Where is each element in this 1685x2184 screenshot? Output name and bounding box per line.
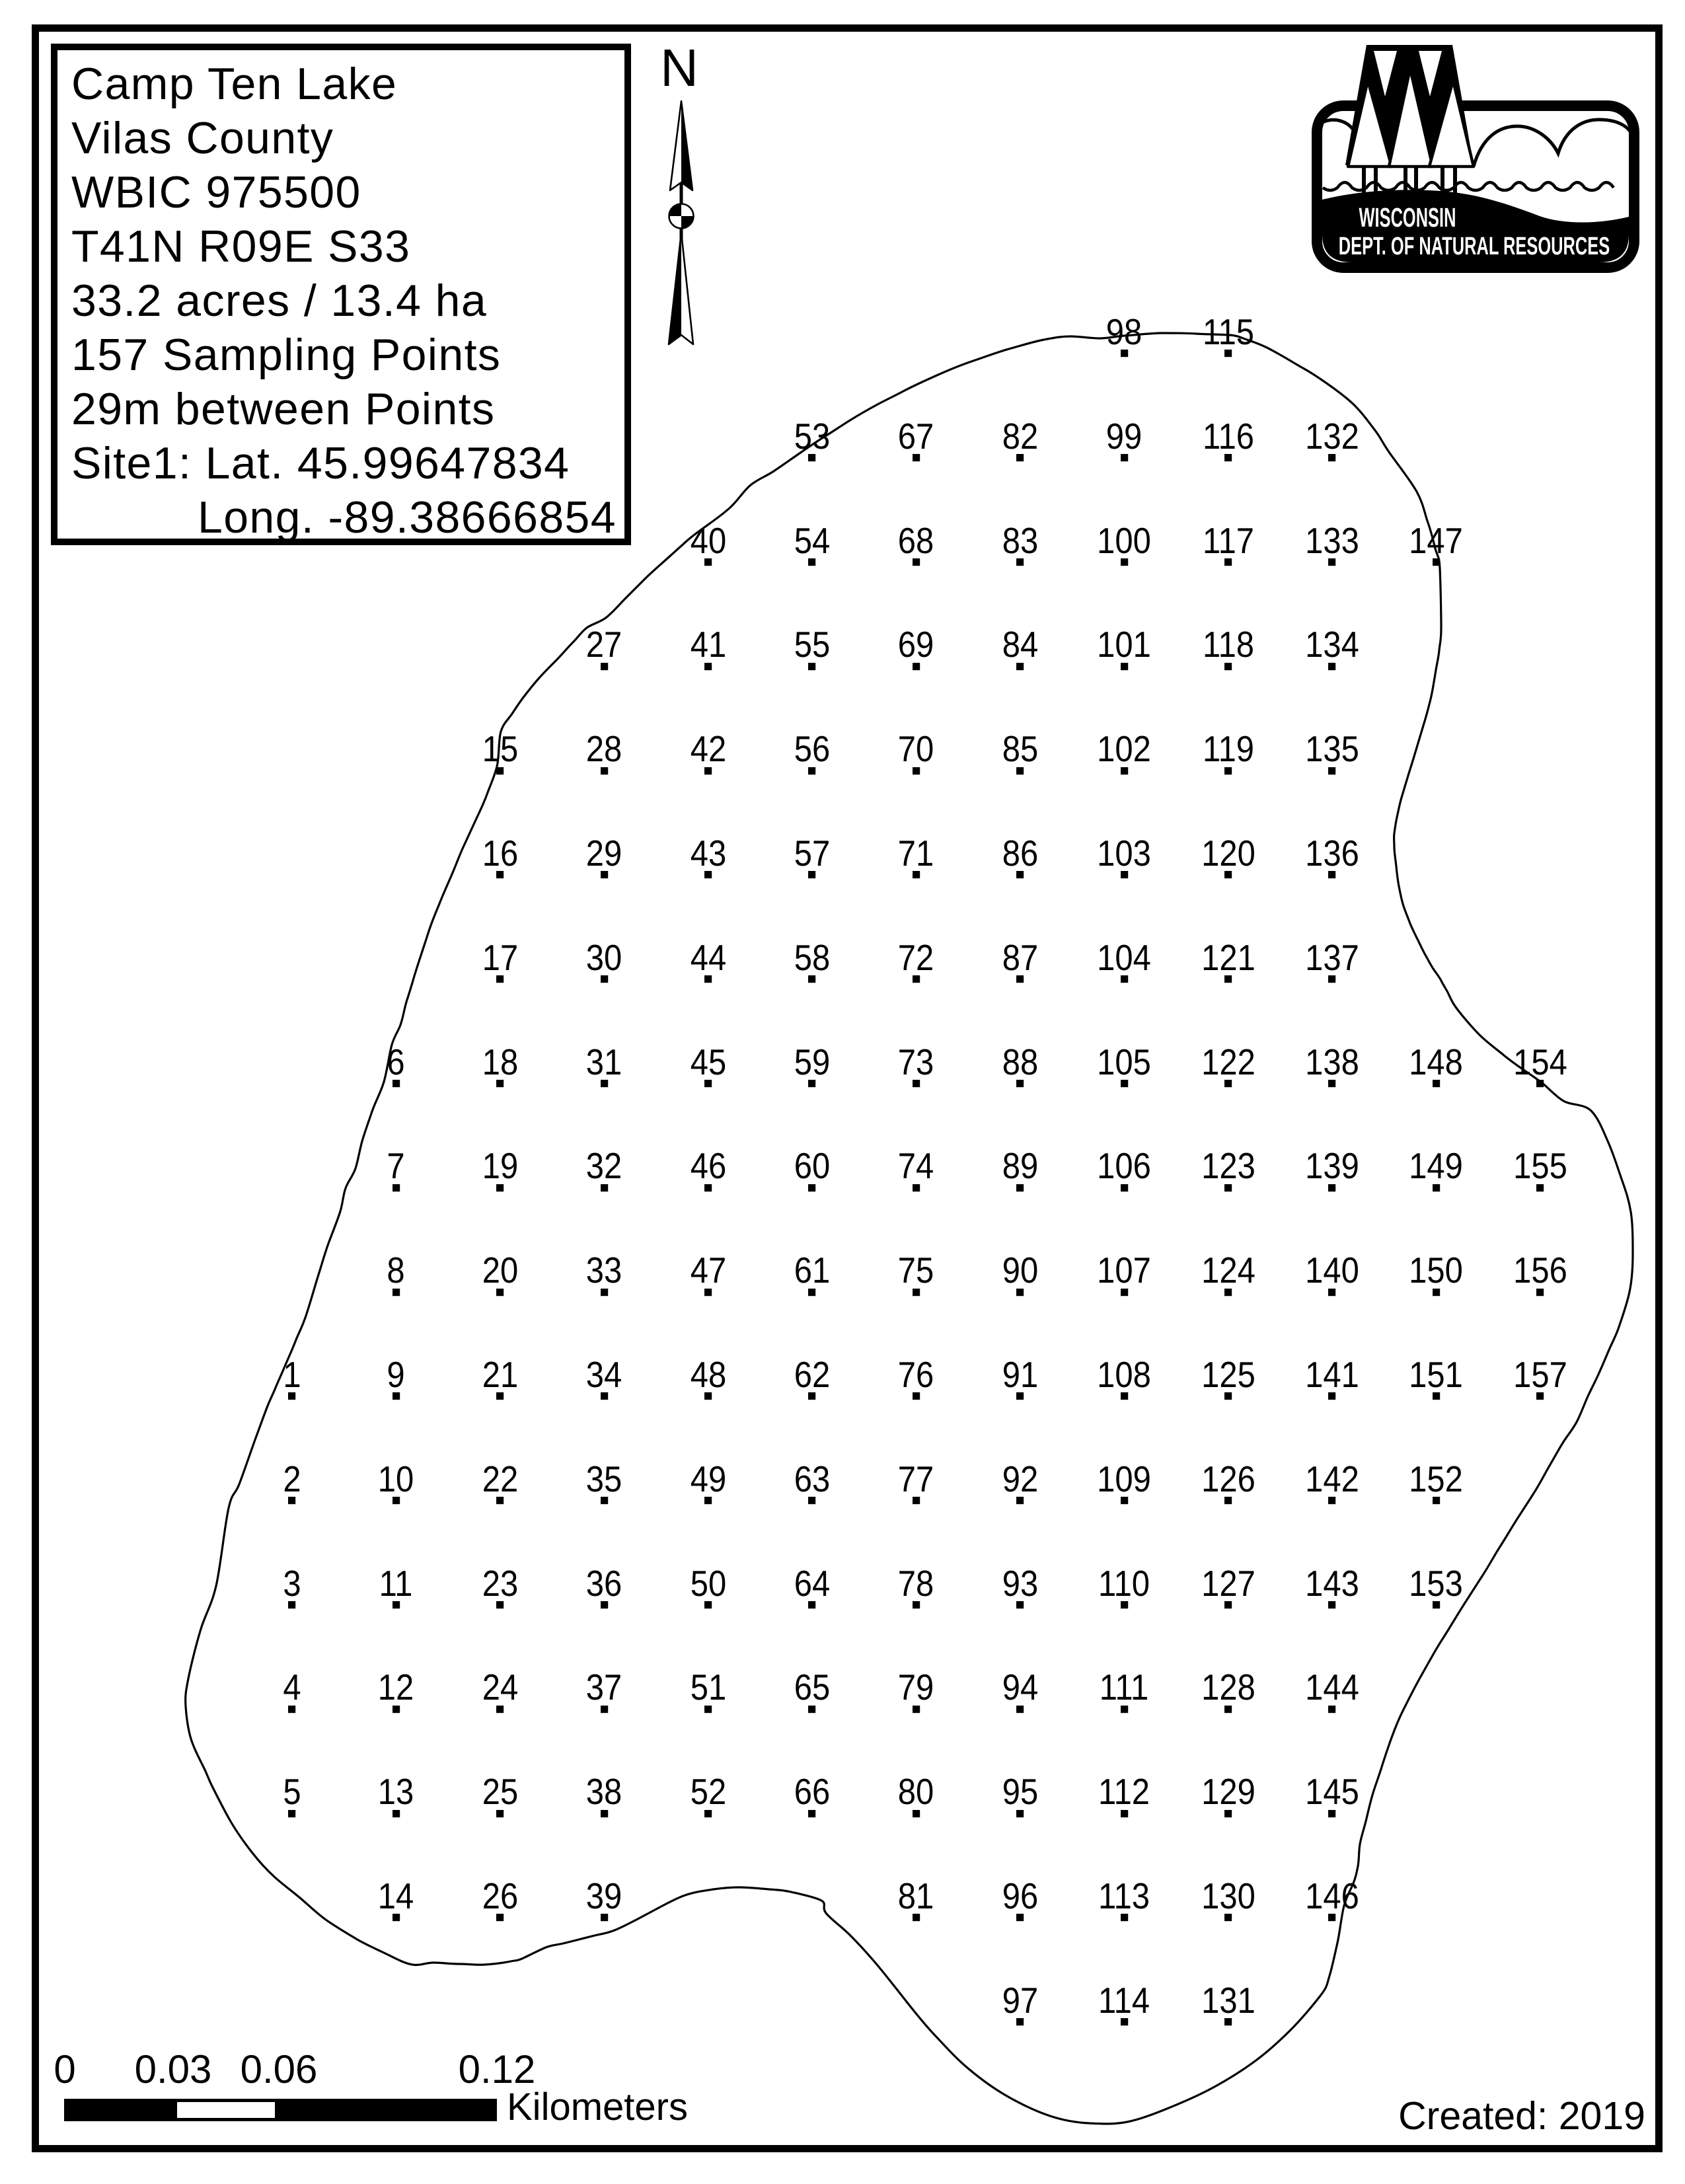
- svg-text:28: 28: [586, 729, 622, 769]
- svg-text:59: 59: [794, 1042, 830, 1082]
- svg-text:80: 80: [898, 1772, 934, 1812]
- svg-text:85: 85: [1002, 729, 1038, 769]
- svg-text:88: 88: [1002, 1042, 1038, 1082]
- svg-text:21: 21: [482, 1355, 518, 1395]
- svg-text:8: 8: [387, 1250, 404, 1291]
- svg-text:150: 150: [1409, 1250, 1463, 1291]
- svg-text:14: 14: [378, 1876, 414, 1916]
- svg-text:45: 45: [691, 1042, 726, 1082]
- svg-text:38: 38: [586, 1772, 622, 1812]
- svg-text:55: 55: [794, 624, 830, 665]
- svg-text:84: 84: [1002, 624, 1038, 665]
- svg-text:29: 29: [586, 833, 622, 874]
- svg-text:146: 146: [1305, 1876, 1359, 1916]
- svg-text:22: 22: [482, 1459, 518, 1499]
- svg-text:113: 113: [1098, 1876, 1150, 1916]
- svg-text:123: 123: [1201, 1146, 1255, 1186]
- svg-text:58: 58: [794, 938, 830, 978]
- svg-text:3: 3: [283, 1563, 301, 1604]
- svg-text:89: 89: [1002, 1146, 1038, 1186]
- svg-text:137: 137: [1305, 938, 1359, 978]
- svg-text:0.03: 0.03: [135, 2047, 212, 2091]
- svg-text:148: 148: [1409, 1042, 1463, 1082]
- svg-text:64: 64: [794, 1563, 830, 1604]
- svg-text:90: 90: [1002, 1250, 1038, 1291]
- svg-text:124: 124: [1201, 1250, 1255, 1291]
- svg-text:71: 71: [898, 833, 934, 874]
- svg-text:112: 112: [1098, 1772, 1150, 1812]
- svg-text:18: 18: [482, 1042, 518, 1082]
- svg-text:N: N: [660, 38, 698, 97]
- svg-text:0.12: 0.12: [459, 2047, 536, 2091]
- svg-text:DEPT. OF NATURAL RESOURCES: DEPT. OF NATURAL RESOURCES: [1339, 232, 1610, 260]
- svg-text:99: 99: [1106, 416, 1142, 457]
- svg-text:76: 76: [898, 1355, 934, 1395]
- svg-text:41: 41: [691, 624, 726, 665]
- svg-text:Kilometers: Kilometers: [507, 2086, 688, 2128]
- svg-text:82: 82: [1002, 416, 1038, 457]
- svg-text:157 Sampling Points: 157 Sampling Points: [71, 330, 501, 380]
- svg-text:147: 147: [1409, 521, 1463, 561]
- svg-text:32: 32: [586, 1146, 622, 1186]
- svg-text:92: 92: [1002, 1459, 1038, 1499]
- svg-text:27: 27: [586, 624, 622, 665]
- svg-text:75: 75: [898, 1250, 934, 1291]
- svg-text:156: 156: [1513, 1250, 1567, 1291]
- svg-text:33.2 acres / 13.4 ha: 33.2 acres / 13.4 ha: [71, 276, 487, 326]
- svg-text:56: 56: [794, 729, 830, 769]
- svg-text:117: 117: [1203, 521, 1254, 561]
- svg-text:17: 17: [482, 938, 518, 978]
- svg-text:140: 140: [1305, 1250, 1359, 1291]
- svg-text:87: 87: [1002, 938, 1038, 978]
- svg-text:15: 15: [482, 729, 518, 769]
- svg-text:70: 70: [898, 729, 934, 769]
- svg-text:26: 26: [482, 1876, 518, 1916]
- svg-text:142: 142: [1305, 1459, 1359, 1499]
- svg-text:12: 12: [378, 1667, 414, 1708]
- svg-text:57: 57: [794, 833, 830, 874]
- svg-text:51: 51: [691, 1667, 726, 1708]
- svg-text:153: 153: [1409, 1563, 1463, 1604]
- svg-text:42: 42: [691, 729, 726, 769]
- svg-text:Vilas County: Vilas County: [71, 113, 334, 163]
- svg-text:Camp Ten Lake: Camp Ten Lake: [71, 59, 397, 109]
- svg-text:130: 130: [1201, 1876, 1255, 1916]
- svg-text:81: 81: [898, 1876, 934, 1916]
- svg-text:39: 39: [586, 1876, 622, 1916]
- svg-text:77: 77: [898, 1459, 934, 1499]
- svg-text:108: 108: [1097, 1355, 1151, 1395]
- svg-text:9: 9: [387, 1355, 404, 1395]
- svg-text:105: 105: [1097, 1042, 1151, 1082]
- svg-text:138: 138: [1305, 1042, 1359, 1082]
- svg-text:20: 20: [482, 1250, 518, 1291]
- svg-text:143: 143: [1305, 1563, 1359, 1604]
- svg-text:73: 73: [898, 1042, 934, 1082]
- svg-text:37: 37: [586, 1667, 622, 1708]
- svg-text:131: 131: [1201, 1980, 1255, 2021]
- svg-text:29m between Points: 29m between Points: [71, 384, 495, 434]
- svg-text:30: 30: [586, 938, 622, 978]
- svg-text:0: 0: [54, 2047, 75, 2091]
- svg-text:102: 102: [1097, 729, 1151, 769]
- svg-text:4: 4: [283, 1667, 301, 1708]
- svg-text:47: 47: [691, 1250, 726, 1291]
- svg-text:98: 98: [1106, 312, 1142, 352]
- svg-text:103: 103: [1097, 833, 1151, 874]
- svg-text:52: 52: [691, 1772, 726, 1812]
- svg-text:35: 35: [586, 1459, 622, 1499]
- svg-text:Site1: Lat. 45.99647834: Site1: Lat. 45.99647834: [71, 438, 570, 488]
- svg-text:115: 115: [1203, 312, 1254, 352]
- svg-text:44: 44: [691, 938, 726, 978]
- svg-text:6: 6: [387, 1042, 404, 1082]
- svg-text:120: 120: [1201, 833, 1255, 874]
- svg-text:49: 49: [691, 1459, 726, 1499]
- svg-text:Created: 2019: Created: 2019: [1398, 2094, 1645, 2138]
- svg-text:78: 78: [898, 1563, 934, 1604]
- svg-text:133: 133: [1305, 521, 1359, 561]
- svg-text:T41N R09E S33: T41N R09E S33: [71, 221, 410, 272]
- svg-text:93: 93: [1002, 1563, 1038, 1604]
- svg-text:152: 152: [1409, 1459, 1463, 1499]
- svg-text:34: 34: [586, 1355, 622, 1395]
- svg-text:101: 101: [1097, 624, 1151, 665]
- svg-text:54: 54: [794, 521, 830, 561]
- svg-text:72: 72: [898, 938, 934, 978]
- svg-text:141: 141: [1305, 1355, 1359, 1395]
- svg-text:11: 11: [379, 1563, 413, 1604]
- svg-text:125: 125: [1201, 1355, 1255, 1395]
- svg-text:134: 134: [1305, 624, 1359, 665]
- svg-text:97: 97: [1002, 1980, 1038, 2021]
- svg-text:145: 145: [1305, 1772, 1359, 1812]
- svg-text:127: 127: [1201, 1563, 1255, 1604]
- svg-text:1: 1: [283, 1355, 301, 1395]
- svg-text:74: 74: [898, 1146, 934, 1186]
- svg-text:33: 33: [586, 1250, 622, 1291]
- svg-text:43: 43: [691, 833, 726, 874]
- svg-text:149: 149: [1409, 1146, 1463, 1186]
- svg-text:68: 68: [898, 521, 934, 561]
- svg-text:0.06: 0.06: [241, 2047, 318, 2091]
- svg-text:118: 118: [1203, 624, 1254, 665]
- svg-text:16: 16: [482, 833, 518, 874]
- svg-text:31: 31: [586, 1042, 622, 1082]
- svg-text:19: 19: [482, 1146, 518, 1186]
- svg-text:135: 135: [1305, 729, 1359, 769]
- svg-text:86: 86: [1002, 833, 1038, 874]
- svg-text:65: 65: [794, 1667, 830, 1708]
- svg-text:121: 121: [1201, 938, 1255, 978]
- svg-text:106: 106: [1097, 1146, 1151, 1186]
- svg-text:139: 139: [1305, 1146, 1359, 1186]
- svg-text:155: 155: [1513, 1146, 1567, 1186]
- svg-text:48: 48: [691, 1355, 726, 1395]
- svg-text:132: 132: [1305, 416, 1359, 457]
- svg-text:53: 53: [794, 416, 830, 457]
- svg-text:95: 95: [1002, 1772, 1038, 1812]
- svg-text:126: 126: [1201, 1459, 1255, 1499]
- svg-text:111: 111: [1100, 1667, 1148, 1708]
- svg-text:62: 62: [794, 1355, 830, 1395]
- svg-text:24: 24: [482, 1667, 518, 1708]
- svg-text:WBIC 975500: WBIC 975500: [71, 167, 361, 217]
- svg-text:69: 69: [898, 624, 934, 665]
- svg-text:154: 154: [1513, 1042, 1567, 1082]
- svg-text:36: 36: [586, 1563, 622, 1604]
- svg-text:46: 46: [691, 1146, 726, 1186]
- svg-text:40: 40: [691, 521, 726, 561]
- svg-text:25: 25: [482, 1772, 518, 1812]
- svg-text:114: 114: [1098, 1980, 1150, 2021]
- svg-text:63: 63: [794, 1459, 830, 1499]
- svg-text:66: 66: [794, 1772, 830, 1812]
- svg-text:67: 67: [898, 416, 934, 457]
- svg-text:119: 119: [1203, 729, 1254, 769]
- svg-text:116: 116: [1203, 416, 1254, 457]
- svg-text:23: 23: [482, 1563, 518, 1604]
- svg-text:110: 110: [1098, 1563, 1150, 1604]
- svg-text:136: 136: [1305, 833, 1359, 874]
- svg-text:100: 100: [1097, 521, 1151, 561]
- svg-text:83: 83: [1002, 521, 1038, 561]
- svg-text:122: 122: [1201, 1042, 1255, 1082]
- svg-text:109: 109: [1097, 1459, 1151, 1499]
- svg-text:WISCONSIN: WISCONSIN: [1359, 203, 1456, 233]
- svg-text:91: 91: [1002, 1355, 1038, 1395]
- svg-text:2: 2: [283, 1459, 301, 1499]
- svg-text:Long. -89.38666854: Long. -89.38666854: [198, 492, 617, 543]
- svg-text:50: 50: [691, 1563, 726, 1604]
- svg-text:128: 128: [1201, 1667, 1255, 1708]
- svg-text:157: 157: [1513, 1355, 1567, 1395]
- svg-text:7: 7: [387, 1146, 404, 1186]
- svg-text:144: 144: [1305, 1667, 1359, 1708]
- svg-text:96: 96: [1002, 1876, 1038, 1916]
- svg-text:79: 79: [898, 1667, 934, 1708]
- svg-text:10: 10: [378, 1459, 414, 1499]
- svg-text:107: 107: [1097, 1250, 1151, 1291]
- svg-text:5: 5: [283, 1772, 301, 1812]
- svg-text:60: 60: [794, 1146, 830, 1186]
- svg-text:129: 129: [1201, 1772, 1255, 1812]
- svg-text:13: 13: [378, 1772, 414, 1812]
- svg-text:104: 104: [1097, 938, 1151, 978]
- svg-text:61: 61: [794, 1250, 830, 1291]
- svg-text:151: 151: [1409, 1355, 1463, 1395]
- svg-text:94: 94: [1002, 1667, 1038, 1708]
